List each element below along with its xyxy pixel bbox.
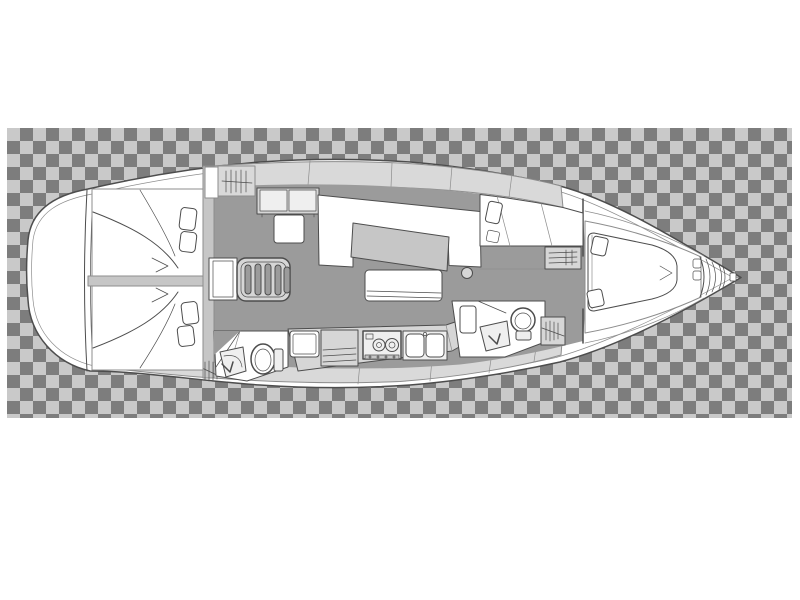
pillow <box>177 325 195 347</box>
side-shelf <box>586 289 604 309</box>
stem-fitting <box>730 273 736 281</box>
shelf <box>460 306 476 333</box>
icebox-module <box>290 331 319 357</box>
forestay-mark <box>736 277 741 278</box>
pillow <box>181 301 200 325</box>
double-sink <box>403 331 447 360</box>
cabinet-door <box>289 190 316 211</box>
toilet-tank <box>274 349 283 371</box>
cabinet-door <box>260 190 287 211</box>
pillow <box>179 231 197 253</box>
seat-shelf <box>486 230 500 243</box>
toilet-tank <box>516 331 531 340</box>
locker-fitting <box>693 271 701 280</box>
floorplan-drawing <box>0 0 800 600</box>
aft-cabin-divider <box>88 276 203 286</box>
stove <box>363 331 401 359</box>
yacht-floorplan-image <box>0 0 800 600</box>
companionway <box>209 258 290 301</box>
seat-module <box>274 215 304 243</box>
locker-fitting <box>693 259 701 268</box>
side-shelf <box>590 236 608 257</box>
toilet-bowl <box>251 344 275 374</box>
top-cabinet-end <box>205 167 218 198</box>
hanging-locker <box>541 317 565 345</box>
aft-cabin-bottom <box>92 286 203 370</box>
aft-cabin-top <box>92 189 203 276</box>
washbasin <box>480 321 510 351</box>
mast-post <box>462 268 473 279</box>
toilet-bowl <box>511 308 535 332</box>
pillow <box>179 207 198 231</box>
